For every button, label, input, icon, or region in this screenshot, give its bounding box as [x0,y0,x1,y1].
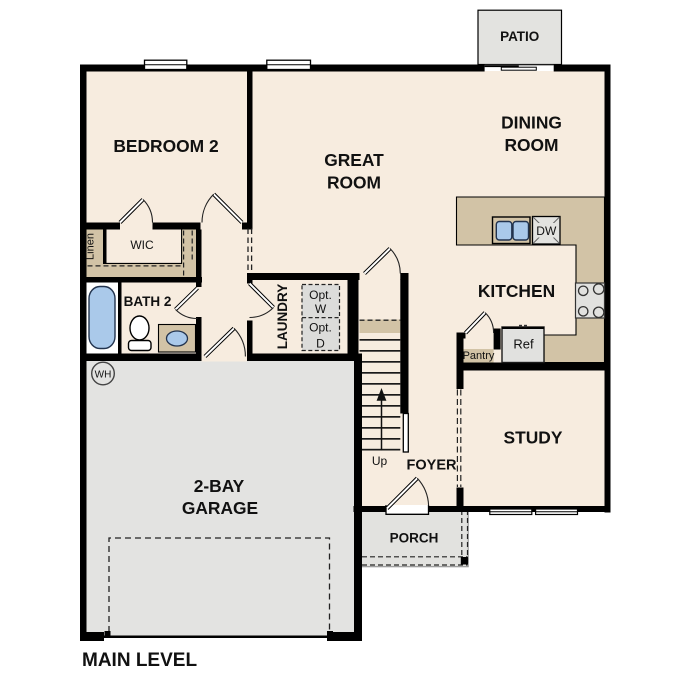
svg-text:KITCHEN: KITCHEN [478,281,555,301]
svg-text:Linen: Linen [85,233,97,260]
svg-text:Up: Up [372,454,388,468]
svg-text:Opt.: Opt. [309,321,332,335]
svg-text:WH: WH [95,370,112,381]
svg-text:STUDY: STUDY [504,427,563,447]
svg-text:ROOM: ROOM [504,135,558,155]
svg-text:LAUNDRY: LAUNDRY [275,284,290,350]
svg-text:GREAT: GREAT [324,150,384,170]
svg-text:DINING: DINING [501,113,562,133]
svg-text:D: D [316,337,325,351]
svg-text:BEDROOM 2: BEDROOM 2 [113,136,218,156]
svg-text:WIC: WIC [130,238,154,252]
svg-text:GARAGE: GARAGE [182,498,258,518]
svg-text:Pantry: Pantry [463,350,495,362]
svg-text:MAIN LEVEL: MAIN LEVEL [82,650,197,671]
svg-text:2-BAY: 2-BAY [194,476,245,496]
svg-text:PATIO: PATIO [500,29,539,44]
svg-text:FOYER: FOYER [407,458,457,474]
svg-text:Opt.: Opt. [309,288,332,302]
svg-text:Ref: Ref [513,337,534,352]
svg-text:BATH 2: BATH 2 [124,294,172,309]
svg-text:W: W [315,302,327,316]
svg-text:ROOM: ROOM [327,173,381,193]
svg-text:DW: DW [536,224,557,238]
svg-text:PORCH: PORCH [390,530,439,545]
